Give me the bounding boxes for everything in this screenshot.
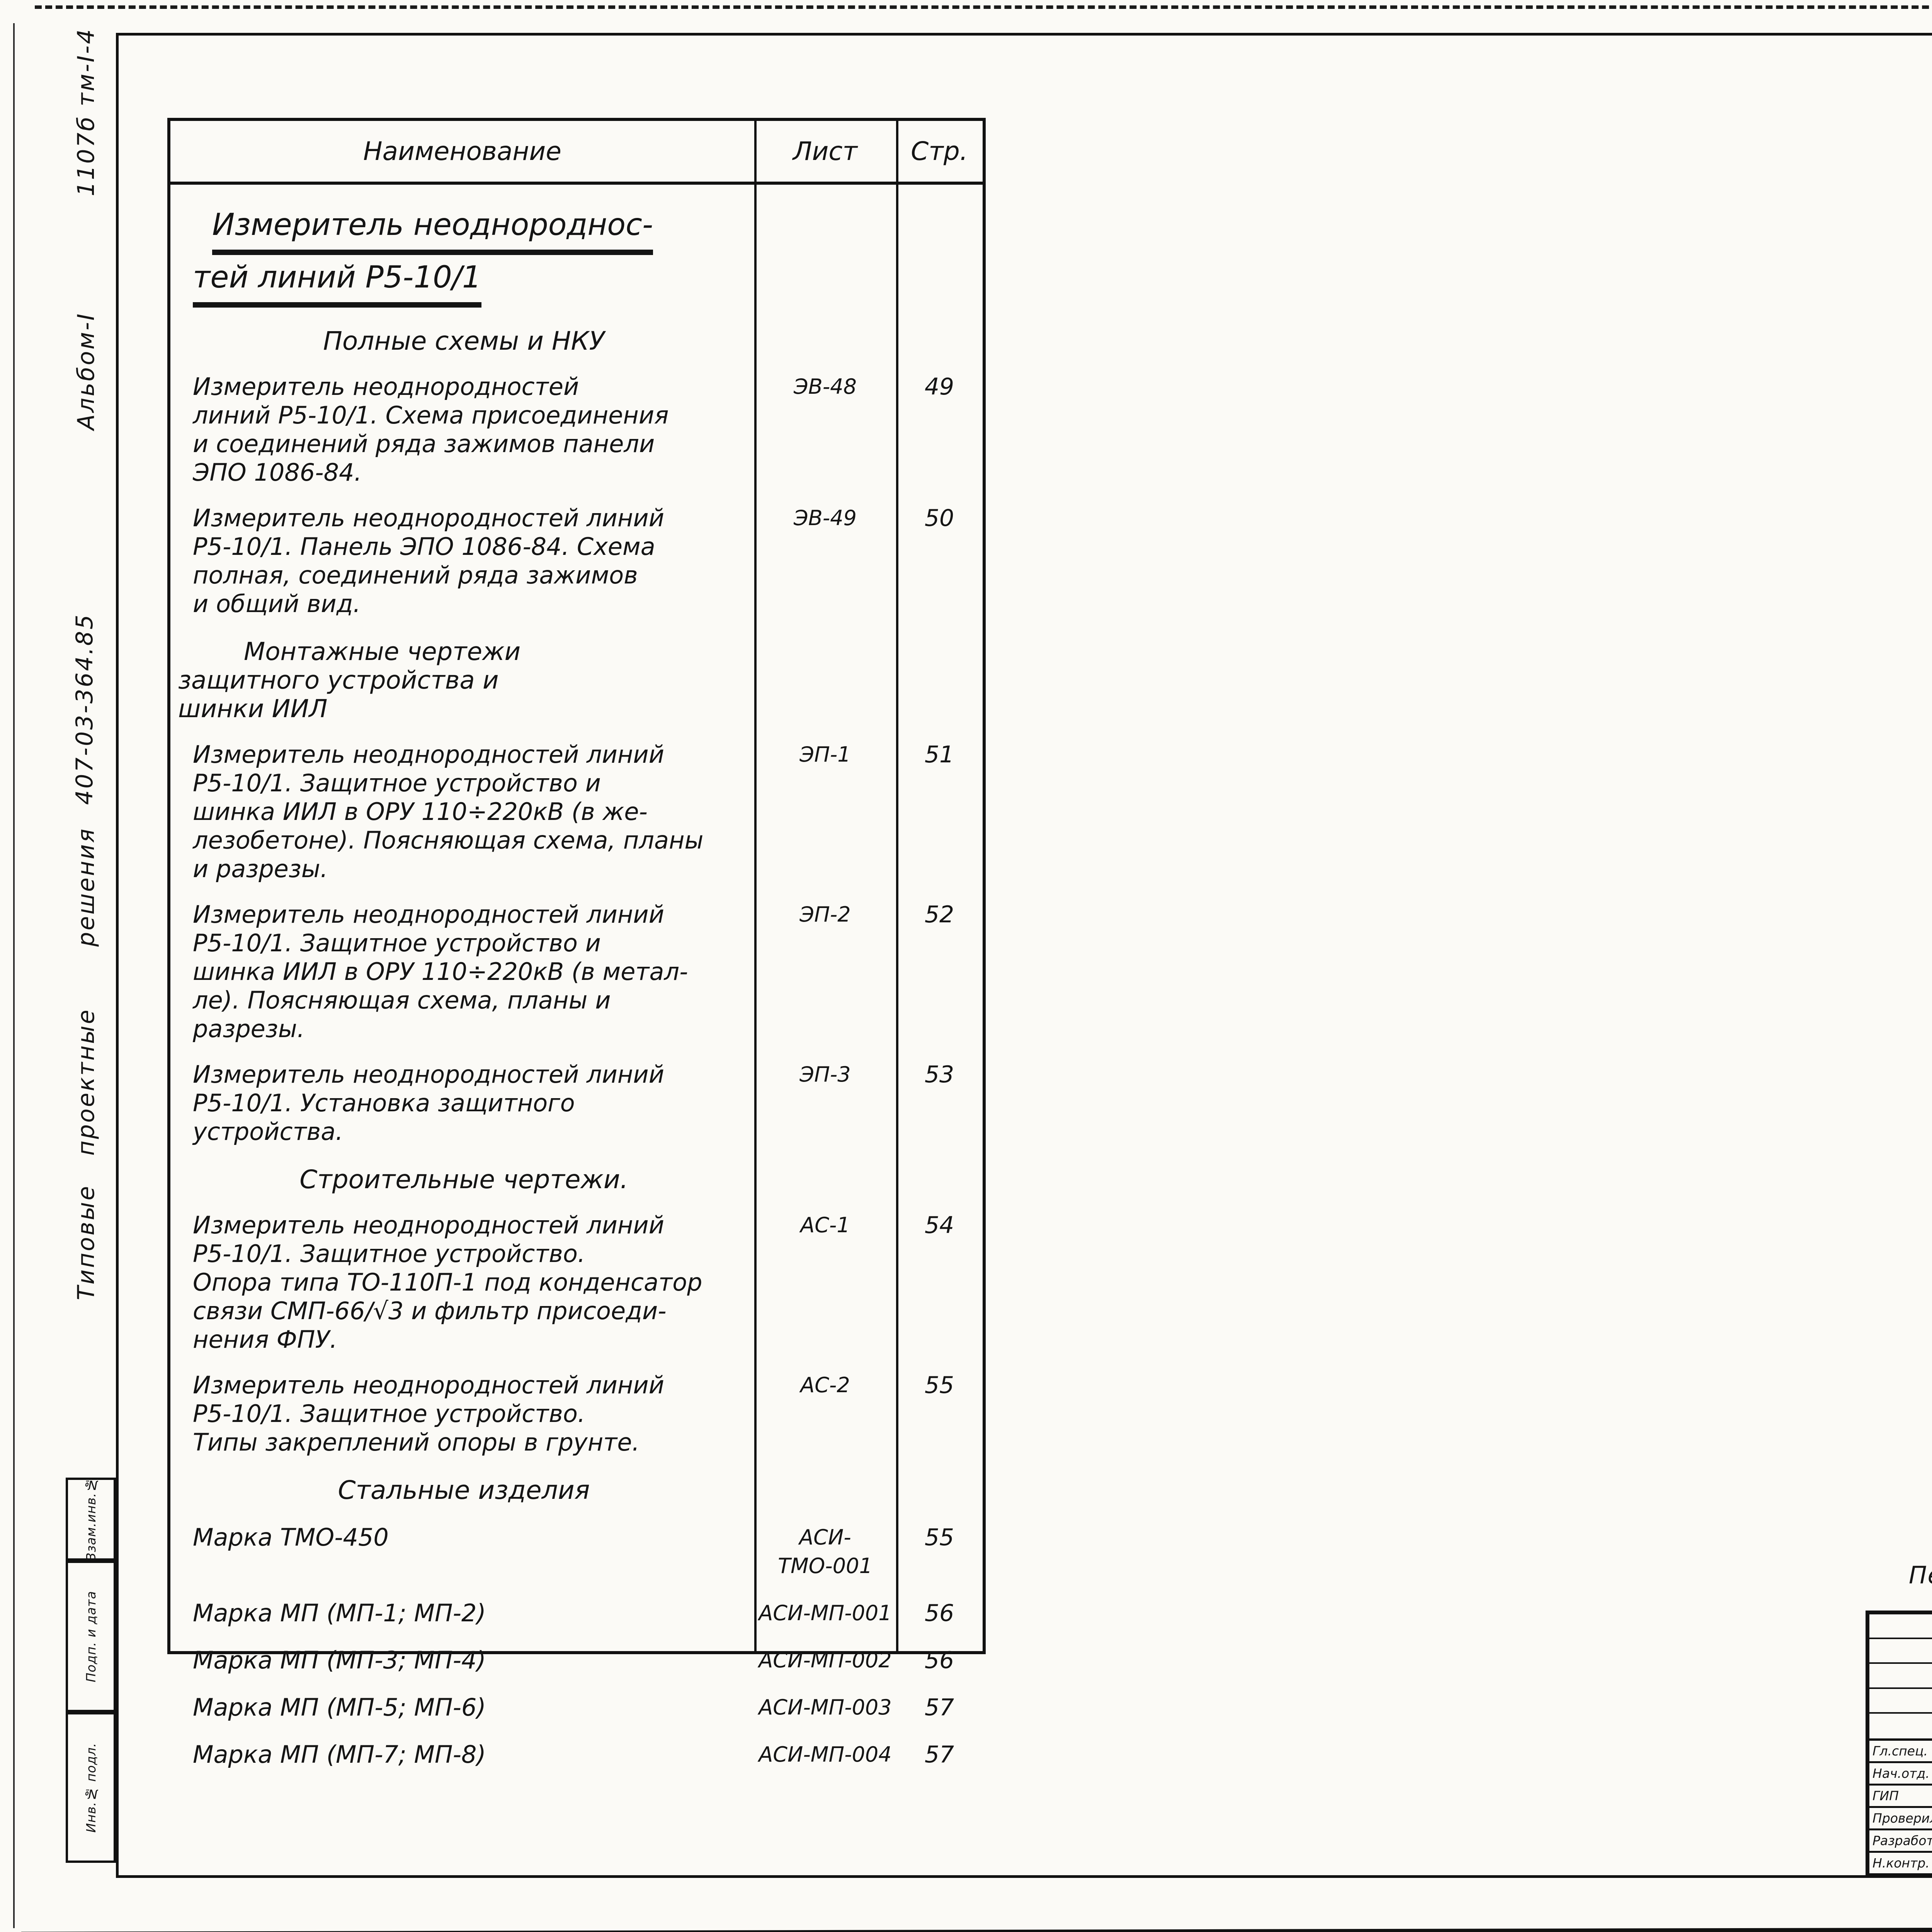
table-row: Марка МП (МП-3; МП-4) АСИ-МП-002 56 (170, 1646, 983, 1675)
staff-row: Нач.отд. Пидкивка (1869, 1761, 1932, 1784)
stamp-cell-podp-data: Подп. и дата (66, 1561, 116, 1712)
drawing-sheet-code: АСИ-МП-002 (754, 1646, 896, 1675)
margin-series-label: 407-03-364.85 (71, 618, 98, 800)
drawing-sheet-code: ЭП-2 (754, 900, 896, 1043)
drawing-name: Марка МП (МП-5; МП-6) (170, 1693, 754, 1722)
table-row: Измеритель неоднородностей линий Р5-10/1… (170, 504, 983, 618)
section-heading: Стальные изделия (170, 1476, 754, 1505)
table-body: Измеритель неоднороднос- тей линий Р5-10… (170, 202, 983, 1769)
staff-role: Разработал (1869, 1833, 1932, 1848)
drawing-sheet-code: АС-2 (754, 1371, 896, 1457)
sheet-left-edge (13, 23, 15, 1928)
revision-grid (1869, 1614, 1932, 1741)
margin-album-label: Альбом-I (73, 309, 100, 433)
drawing-page: 52 (896, 900, 983, 1043)
table-row: Марка МП (МП-7; МП-8) АСИ-МП-004 57 (170, 1740, 983, 1769)
drawing-sheet-code (754, 638, 896, 723)
drawing-sheet-code: ЭВ-48 (754, 372, 896, 487)
drawing-sheet-code (754, 1476, 896, 1505)
staff-role: Н.контр. (1869, 1855, 1932, 1871)
drawing-sheet-code: АСИ-МП-001 (754, 1599, 896, 1628)
drawing-name: Измеритель неоднородностей линий Р5-10/1… (170, 1371, 754, 1457)
drawing-sheet: 3 1107б тм-I-4 Альбом-I 407-03-364.85 ре… (0, 0, 1932, 1932)
drawing-page (896, 1165, 983, 1194)
drawing-page: 49 (896, 372, 983, 487)
staff-row: Проверил Сатурский (1869, 1806, 1932, 1828)
sheet-note: Перечень чертежей выполнен на листах 1,2… (1909, 1561, 1932, 1589)
table-row: Марка ТМО-450 АСИ-ТМО-001 55 (170, 1523, 983, 1580)
drawing-page (896, 638, 983, 723)
staff-row: Н.контр. Литвин 06.04 (1869, 1851, 1932, 1873)
table-row-group-title: Измеритель неоднороднос- тей линий Р5-10… (170, 202, 983, 308)
drawing-page (896, 1476, 983, 1505)
staff-role: Нач.отд. (1869, 1766, 1932, 1781)
title-block: Гл.спец. Максимчук 21.03 Нач.отд. Пидкив… (1866, 1611, 1932, 1877)
stamp-cell-inv-podl: Инв.№ подл. (66, 1712, 116, 1863)
drawing-name: Марка МП (МП-1; МП-2) (170, 1599, 754, 1628)
drawing-sheet-code: АСИ-ТМО-001 (754, 1523, 896, 1580)
stamp-inv-label: Инв.№ подл. (83, 1743, 99, 1833)
drawing-page (896, 202, 983, 308)
drawing-page: 54 (896, 1211, 983, 1354)
column-header-name: Наименование (170, 136, 754, 166)
table-row: Марка МП (МП-5; МП-6) АСИ-МП-003 57 (170, 1693, 983, 1722)
drawing-name: Измеритель неоднородностей линий Р5-10/1… (170, 372, 754, 487)
column-header-page: Стр. (896, 136, 983, 166)
drawing-name: Марка МП (МП-7; МП-8) (170, 1740, 754, 1769)
table-row-heading: Монтажные чертежи защитного устройства и… (170, 638, 983, 723)
section-heading: Строительные чертежи. (170, 1165, 754, 1194)
title-block-left: Гл.спец. Максимчук 21.03 Нач.отд. Пидкив… (1869, 1614, 1932, 1873)
group-title-line2: тей линий Р5-10/1 (193, 255, 481, 308)
drawing-name: Измеритель неоднородностей линий Р5-10/1… (170, 1060, 754, 1146)
drawing-sheet-code: АСИ-МП-004 (754, 1740, 896, 1769)
drawing-name: Марка МП (МП-3; МП-4) (170, 1646, 754, 1675)
table-row-heading: Стальные изделия (170, 1476, 983, 1505)
drawing-page: 57 (896, 1740, 983, 1769)
margin-title-word-resheniya: решения (73, 815, 100, 958)
table-row: Измеритель неоднородностей линий Р5-10/1… (170, 372, 983, 487)
staff-role: ГИП (1869, 1788, 1932, 1803)
drawing-page: 57 (896, 1693, 983, 1722)
drawing-sheet-code: АС-1 (754, 1211, 896, 1354)
sheet-top-edge (35, 5, 1932, 9)
drawing-sheet-code: ЭВ-49 (754, 504, 896, 618)
stamp-vzam-label: Взам.инв.№ (83, 1477, 99, 1561)
staff-row: Разработал Граб 16.03 (1869, 1828, 1932, 1851)
drawing-page: 56 (896, 1646, 983, 1675)
drawing-page (896, 327, 983, 355)
table-row: Измеритель неоднородностей линий Р5-10/1… (170, 1371, 983, 1457)
stamp-podp-label: Подп. и дата (83, 1591, 99, 1682)
drawing-page: 55 (896, 1371, 983, 1457)
drawing-name: Измеритель неоднородностей линий Р5-10/1… (170, 900, 754, 1043)
stamp-cell-vzam-inv: Взам.инв.№ (66, 1478, 116, 1561)
margin-title-word-tipovye: Типовые (73, 1175, 100, 1310)
table-row-heading: Строительные чертежи. (170, 1165, 983, 1194)
margin-title-word-proektnye: проектные (73, 1001, 100, 1163)
drawing-page: 50 (896, 504, 983, 618)
table-row: Марка МП (МП-1; МП-2) АСИ-МП-001 56 (170, 1599, 983, 1628)
section-heading: Монтажные чертежи защитного устройства и… (170, 638, 754, 723)
drawings-index-table: Наименование Лист Стр. Измеритель неодно… (167, 118, 986, 1654)
staff-row: ГИП Сатурский 21.03 (1869, 1784, 1932, 1806)
drawing-page: 53 (896, 1060, 983, 1146)
group-title: Измеритель неоднороднос- тей линий Р5-10… (170, 202, 754, 308)
margin-code-label: 1107б тм-I-4 (73, 46, 100, 178)
drawing-name: Марка ТМО-450 (170, 1523, 754, 1580)
group-title-line1: Измеритель неоднороднос- (212, 202, 653, 255)
drawing-name: Измеритель неоднородностей линий Р5-10/1… (170, 1211, 754, 1354)
staff-rows: Гл.спец. Максимчук 21.03 Нач.отд. Пидкив… (1869, 1741, 1932, 1873)
table-row: Измеритель неоднородностей линий Р5-10/1… (170, 1211, 983, 1354)
drawing-page: 56 (896, 1599, 983, 1628)
drawing-sheet-code: ЭП-3 (754, 1060, 896, 1146)
column-header-sheet: Лист (754, 136, 896, 166)
table-row: Измеритель неоднородностей линий Р5-10/1… (170, 1060, 983, 1146)
staff-role: Гл.спец. (1869, 1743, 1932, 1759)
table-row: Измеритель неоднородностей линий Р5-10/1… (170, 900, 983, 1043)
drawing-name: Измеритель неоднородностей линий Р5-10/1… (170, 740, 754, 883)
drawing-name: Измеритель неоднородностей линий Р5-10/1… (170, 504, 754, 618)
table-row: Измеритель неоднородностей линий Р5-10/1… (170, 740, 983, 883)
drawing-sheet-code: ЭП-1 (754, 740, 896, 883)
staff-role: Проверил (1869, 1811, 1932, 1826)
section-heading: Полные схемы и НКУ (170, 327, 754, 355)
drawing-sheet-code (754, 202, 896, 308)
drawing-sheet-code (754, 327, 896, 355)
staff-row: Гл.спец. Максимчук 21.03 (1869, 1741, 1932, 1761)
table-row-heading: Полные схемы и НКУ (170, 327, 983, 355)
drawing-sheet-code: АСИ-МП-003 (754, 1693, 896, 1722)
sheet-bottom-trim-line (21, 1926, 1932, 1932)
drawing-page: 55 (896, 1523, 983, 1580)
drawing-page: 51 (896, 740, 983, 883)
table-header-row: Наименование Лист Стр. (170, 121, 983, 185)
drawing-sheet-code (754, 1165, 896, 1194)
